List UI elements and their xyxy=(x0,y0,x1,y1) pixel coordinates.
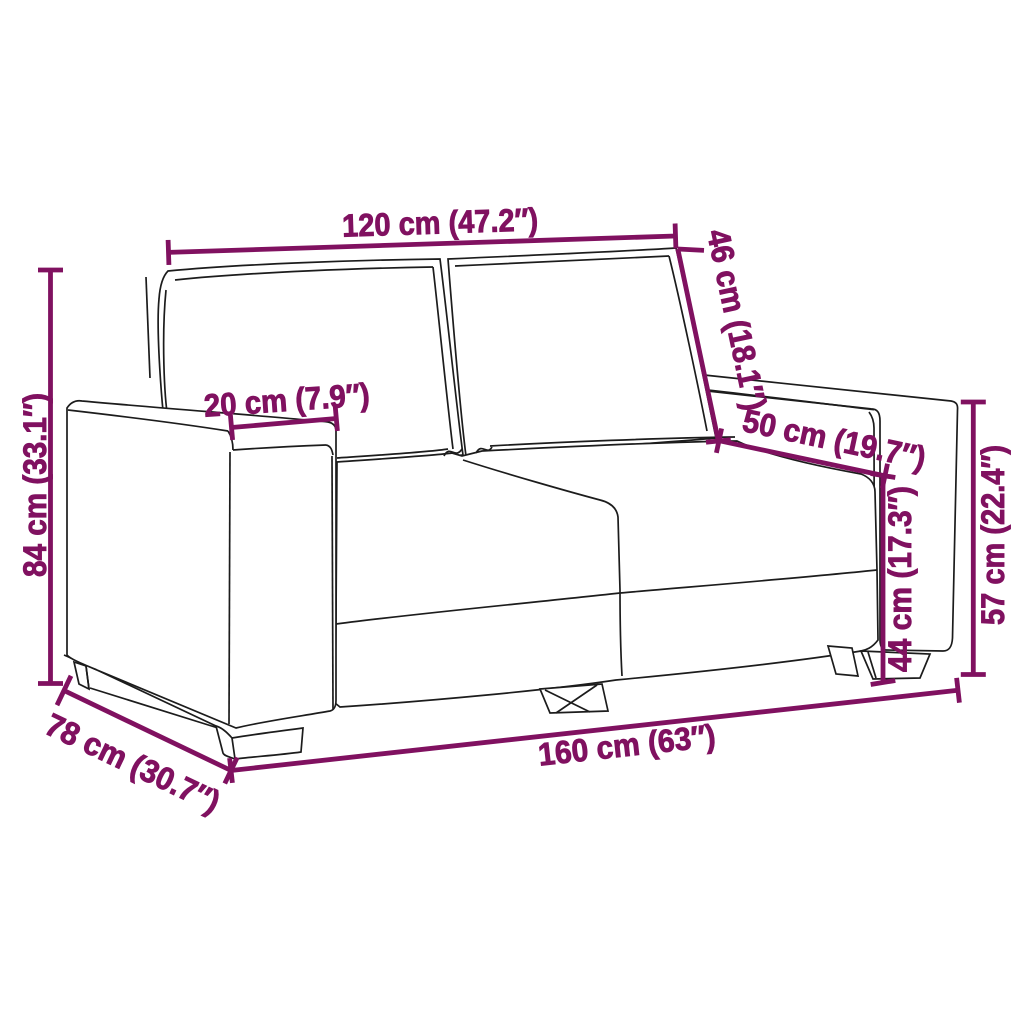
svg-text:120 cm (47.2″): 120 cm (47.2″) xyxy=(342,201,539,243)
svg-text:84 cm (33.1″): 84 cm (33.1″) xyxy=(17,393,53,577)
svg-text:57 cm (22.4″): 57 cm (22.4″) xyxy=(975,445,1011,625)
svg-text:44 cm (17.3″): 44 cm (17.3″) xyxy=(882,486,918,672)
